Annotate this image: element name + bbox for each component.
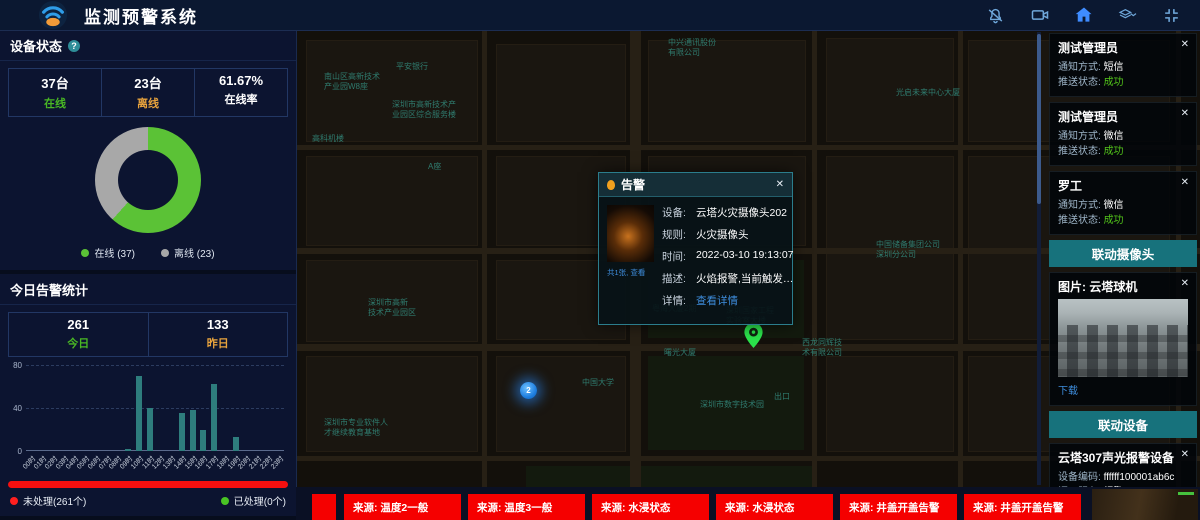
map-pin-marker[interactable] (742, 322, 765, 354)
alert-chip[interactable]: 来源: 水浸状态 (716, 494, 833, 520)
bar-chart-bar (200, 430, 206, 452)
hourly-alerts-bar-chart: 80400 (26, 365, 284, 451)
home-icon[interactable] (1074, 5, 1094, 25)
bar-chart-bar (211, 384, 217, 451)
bar-chart-bar (179, 413, 185, 451)
card-field-value: 成功 (1104, 146, 1124, 157)
map-place-label: 出口 (774, 392, 790, 402)
donut-legend: 在线 (37)离线 (23) (0, 245, 296, 260)
bar-ytick: 80 (6, 361, 22, 370)
card-field-value: 短信 (1104, 62, 1124, 73)
popup-field-value: 火灾摄像头 (696, 227, 749, 242)
popup-field-label: 详情: (662, 293, 696, 308)
alert-chip[interactable]: 来源: 井盖开盖告警 (964, 494, 1081, 520)
popup-field-value: 2022-03-10 19:13:07 (696, 249, 794, 264)
card-title: 测试管理员 (1058, 39, 1188, 56)
legend-dot (161, 249, 169, 257)
alert-chip[interactable]: 来源: 温度3一般 (468, 494, 585, 520)
stat-label: 离线 (102, 95, 194, 111)
legend-dot (10, 497, 18, 505)
bar-gridline (26, 408, 284, 409)
bar-gridline (26, 365, 284, 366)
stat-value: 37台 (9, 73, 101, 92)
popup-close-icon[interactable]: ✕ (776, 179, 784, 190)
map-place-label: 光启未来中心大厦 (896, 88, 960, 98)
right-sidebar: 测试管理员✕通知方式: 短信推送状态: 成功测试管理员✕通知方式: 微信推送状态… (1043, 30, 1200, 487)
card-field-label: 推送状态: (1058, 215, 1104, 226)
bar-chart-bar (233, 437, 239, 451)
map-block (306, 156, 478, 246)
left-stats-panel: 设备状态 ? 37台在线23台离线61.67%在线率 在线 (37)离线 (23… (0, 30, 297, 520)
card-field-row: 通知方式: 微信 (1058, 129, 1188, 144)
card-field-row: 推送状态: 成功 (1058, 213, 1188, 228)
map-place-label: 曙光大厦 (664, 348, 696, 358)
map-block (496, 356, 626, 452)
download-link[interactable]: 下载 (1058, 382, 1078, 397)
card-field-row: 设备编码: ffffff100001ab6c (1058, 470, 1188, 485)
popup-fields: 设备:云塔火灾摄像头202规则:火灾摄像头时间:2022-03-10 19:13… (662, 205, 802, 315)
bottom-alert-bar: 来源: 温度2一般来源: 温度3一般来源: 水浸状态来源: 水浸状态来源: 井盖… (296, 487, 1200, 520)
legend-label: 未处理(261个) (23, 493, 86, 508)
popup-field-label: 描述: (662, 271, 696, 286)
map-block (306, 356, 478, 452)
map-place-label: 高科机楼 (312, 134, 344, 144)
map-place-label: 西龙同辉技 术有限公司 (802, 338, 842, 357)
view-details-link[interactable]: 查看详情 (696, 293, 738, 308)
bar-ytick: 40 (6, 404, 22, 413)
stat-cell: 23台离线 (102, 69, 195, 116)
stat-label: 今日 (9, 335, 148, 351)
alert-chip[interactable]: 来源: 水浸状态 (592, 494, 709, 520)
today-alerts-table: 261今日133昨日 (8, 312, 288, 357)
stat-value: 133 (149, 317, 288, 332)
map-place-label: 深圳市数字技术园 (700, 400, 764, 410)
stat-cell: 61.67%在线率 (195, 69, 287, 116)
fullscreen-exit-icon[interactable] (1162, 5, 1182, 25)
popup-field-row: 时间:2022-03-10 19:13:07 (662, 249, 802, 264)
alert-chip-partial[interactable] (312, 494, 336, 520)
bar-ytick: 0 (6, 447, 22, 456)
help-icon[interactable]: ? (68, 40, 80, 52)
linked-cameras-header[interactable]: 联动摄像头 (1049, 240, 1197, 267)
app-logo (38, 0, 68, 30)
stat-cell: 133昨日 (149, 313, 288, 356)
card-field-row: 推送状态: 成功 (1058, 144, 1188, 159)
map-block (306, 40, 478, 142)
alert-popup: 告警 ✕ 共1张, 查看 设备:云塔火灾摄像头202规则:火灾摄像头时间:202… (598, 172, 793, 325)
alert-chip[interactable]: 来源: 温度2一般 (344, 494, 461, 520)
card-field-row: 推送状态: 成功 (1058, 75, 1188, 90)
close-icon[interactable]: ✕ (1181, 39, 1189, 50)
map-place-label: 平安银行 (396, 62, 428, 72)
map-cluster-marker[interactable]: 2 (520, 382, 537, 399)
popup-title: 告警 (621, 176, 770, 193)
sidebar-scrollbar[interactable] (1037, 32, 1041, 485)
alarm-lamp-icon (607, 180, 615, 190)
legend-label: 已处理(0个) (234, 493, 286, 508)
close-icon[interactable]: ✕ (1181, 449, 1189, 460)
stat-value: 261 (9, 317, 148, 332)
card-field-row: 通知方式: 微信 (1058, 198, 1188, 213)
map-block (496, 44, 626, 142)
popup-field-value: 云塔火灾摄像头202 (696, 205, 787, 220)
map-block (826, 356, 954, 452)
legend-item: 已处理(0个) (221, 493, 286, 508)
map-road (958, 30, 963, 520)
legend-dot (221, 497, 229, 505)
stat-label: 在线 (9, 95, 101, 111)
bar-chart-x-labels: 00时01时02时03时04时05时06时07时08时09时10时11时12时1… (26, 451, 284, 473)
map-place-label: 中兴通讯股份 有限公司 (668, 38, 716, 57)
bar-chart-bar (136, 376, 142, 451)
camera-card: 图片: 云塔球机 ✕ 下载 (1049, 272, 1197, 406)
snapshot-view-link[interactable]: 共1张, 查看 (607, 267, 654, 278)
card-field-label: 通知方式: (1058, 131, 1104, 142)
legend-dot (81, 249, 89, 257)
stat-cell: 261今日 (9, 313, 149, 356)
card-field-value: 成功 (1104, 215, 1124, 226)
card-field-value: ffffff100001ab6c (1104, 472, 1175, 483)
card-field-label: 通知方式: (1058, 200, 1104, 211)
map-road (482, 30, 487, 520)
stat-label: 昨日 (149, 335, 288, 351)
layers-dropdown-icon[interactable] (1118, 5, 1138, 25)
linked-devices-header[interactable]: 联动设备 (1049, 411, 1197, 438)
close-icon[interactable]: ✕ (1181, 278, 1189, 289)
card-title: 罗工 (1058, 177, 1188, 194)
notification-card: 测试管理员✕通知方式: 微信推送状态: 成功 (1049, 102, 1197, 166)
popup-field-row: 描述:火焰报警,当前触发值为... (662, 271, 802, 286)
popup-field-row: 规则:火灾摄像头 (662, 227, 802, 242)
legend-item: 未处理(261个) (10, 493, 86, 508)
bar-chart-bar (147, 408, 153, 451)
camera-snapshot-image[interactable] (1058, 299, 1188, 377)
popup-field-value: 火焰报警,当前触发值为... (696, 271, 802, 286)
stat-value: 23台 (102, 73, 194, 92)
notification-card: 测试管理员✕通知方式: 短信推送状态: 成功 (1049, 33, 1197, 97)
legend-label: 在线 (37) (94, 245, 135, 260)
popup-field-label: 设备: (662, 205, 696, 220)
top-header: 监测预警系统 (0, 0, 1200, 31)
video-camera-icon[interactable] (1030, 5, 1050, 25)
close-icon[interactable]: ✕ (1181, 108, 1189, 119)
card-field-value: 微信 (1104, 131, 1124, 142)
header-toolbar (986, 0, 1182, 30)
card-title: 云塔307声光报警设备 (1058, 449, 1188, 466)
map-place-label: 深圳市专业软件人 才继续教育基地 (324, 418, 388, 437)
popup-field-row: 详情:查看详情 (662, 293, 802, 308)
process-legend: 未处理(261个)已处理(0个) (0, 493, 296, 516)
card-field-value: 微信 (1104, 200, 1124, 211)
camera-card-title: 图片: 云塔球机 (1058, 278, 1188, 295)
map-place-label: 南山区高新技术 产业园W8座 (324, 72, 380, 91)
device-status-table: 37台在线23台离线61.67%在线率 (8, 68, 288, 117)
card-title: 测试管理员 (1058, 108, 1188, 125)
stat-label: 在线率 (195, 91, 287, 107)
bell-off-icon[interactable] (986, 5, 1006, 25)
recording-indicator (1178, 492, 1194, 495)
alert-chip[interactable]: 来源: 井盖开盖告警 (840, 494, 957, 520)
legend-label: 离线 (23) (174, 245, 215, 260)
card-field-value: 成功 (1104, 77, 1124, 88)
notification-card: 云塔307声光报警设备✕设备编码: ffffff100001ab6c调用服务: … (1049, 443, 1197, 487)
card-field-label: 推送状态: (1058, 77, 1104, 88)
popup-thumb-col: 共1张, 查看 (607, 205, 654, 315)
device-status-panel: 设备状态 ? 37台在线23台离线61.67%在线率 在线 (37)离线 (23… (0, 30, 296, 274)
card-field-label: 设备编码: (1058, 472, 1104, 483)
notification-card: 罗工✕通知方式: 微信推送状态: 成功 (1049, 171, 1197, 235)
card-field-label: 推送状态: (1058, 146, 1104, 157)
video-feed-thumbnail[interactable] (1092, 489, 1198, 520)
bar-chart-bar (190, 410, 196, 451)
stat-cell: 37台在线 (9, 69, 102, 116)
popup-field-label: 规则: (662, 227, 696, 242)
map-place-label: 中国储备集团公司 深圳分公司 (876, 240, 940, 259)
map-place-label: A座 (428, 162, 441, 172)
map-place-label: 深圳市高新技术产 业园区综合服务楼 (392, 100, 456, 119)
today-alerts-panel: 今日告警统计 261今日133昨日 80400 00时01时02时03时04时0… (0, 274, 296, 520)
today-alerts-title: 今日告警统计 (10, 280, 88, 299)
card-field-row: 通知方式: 短信 (1058, 60, 1188, 75)
map-place-label: 中国大学 (582, 378, 614, 388)
close-icon[interactable]: ✕ (1181, 177, 1189, 188)
device-status-donut-chart (95, 127, 201, 233)
donut-hole (118, 150, 178, 210)
fire-snapshot-thumbnail[interactable] (607, 205, 654, 262)
legend-item: 在线 (37) (81, 245, 135, 260)
popup-field-label: 时间: (662, 249, 696, 264)
stat-value: 61.67% (195, 73, 287, 88)
device-status-title: 设备状态 (10, 36, 62, 55)
map-road (812, 30, 817, 520)
card-field-label: 通知方式: (1058, 62, 1104, 73)
legend-item: 离线 (23) (161, 245, 215, 260)
popup-field-row: 设备:云塔火灾摄像头202 (662, 205, 802, 220)
scrollbar-thumb[interactable] (1037, 34, 1041, 204)
app-title: 监测预警系统 (84, 3, 198, 28)
map-place-label: 深圳市高新 技术产业园区 (368, 298, 416, 317)
